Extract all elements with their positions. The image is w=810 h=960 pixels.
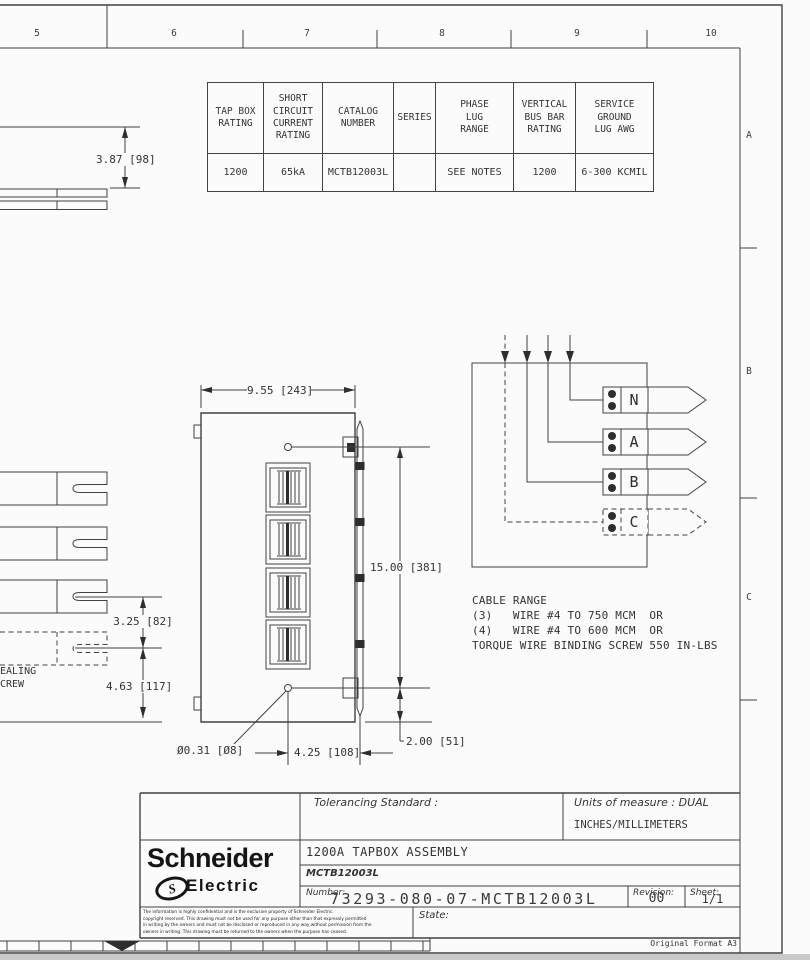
phase-label-c: C (625, 513, 643, 531)
spec-value-bus-bar-rating: 1200 (514, 153, 576, 191)
tapbox-enclosure-view (194, 413, 365, 722)
sealing-screw-note-line2: CREW (0, 679, 24, 690)
dimension-15-00: 15.00 [381] (370, 561, 432, 574)
dimension-0-31: Ø0.31 [Ø8] (177, 744, 239, 757)
legal-line-3: in writing by the owners and must not be… (143, 923, 411, 930)
spec-value-short-circuit: 65kA (264, 153, 323, 191)
cable-range-title: CABLE RANGE (472, 594, 547, 607)
cable-range-note-3: TORQUE WIRE BINDING SCREW 550 IN-LBS (472, 639, 718, 652)
dimension-3-25: 3.25 [82] (113, 615, 173, 628)
cable-range-note-2: (4) WIRE #4 TO 600 MCM OR (472, 624, 663, 637)
top-left-partial-view (0, 127, 140, 210)
spec-header-bus-bar-rating: VERTICAL BUS BAR RATING (514, 83, 576, 153)
spec-table: TAP BOX RATING SHORT CIRCUIT CURRENT RAT… (207, 82, 654, 192)
phase-label-b: B (625, 473, 643, 491)
units-value: INCHES/MILLIMETERS (574, 819, 688, 831)
format-note: Original Format A3 (597, 939, 737, 948)
legal-line-4: owners in writing. This drawing must be … (143, 930, 411, 937)
spec-value-series (394, 153, 436, 191)
phase-wiring-diagram (472, 335, 706, 567)
units-of-measure-label: Units of measure : DUAL (574, 796, 709, 809)
sheet-value: 1/1 (685, 892, 740, 906)
enclosure-dimensions (201, 385, 432, 765)
zone-col-7: 7 (297, 28, 317, 39)
drawing-number: 73293-080-07-MCTB12003L (330, 890, 598, 908)
spec-header-catalog-number: CATALOG NUMBER (323, 83, 394, 153)
zone-col-10: 10 (701, 28, 721, 39)
state-label: State: (419, 910, 449, 921)
zone-row-b: B (742, 366, 756, 377)
spec-header-tap-box-rating: TAP BOX RATING (208, 83, 264, 153)
revision-value: 00 (628, 891, 685, 906)
zone-row-c: C (742, 592, 756, 603)
dimension-9-55: 9.55 [243] (247, 384, 311, 397)
zone-col-5: 5 (27, 28, 47, 39)
spec-value-phase-lug-range: SEE NOTES (436, 153, 514, 191)
sealing-screw-note-line1: EALING (0, 666, 36, 677)
legal-line-1: The information is highly confidential a… (143, 910, 411, 917)
zone-col-8: 8 (432, 28, 452, 39)
engineering-drawing-page: 5 6 7 8 9 10 A B C TAP BOX RATING SHORT … (0, 0, 810, 960)
schneider-logo-wordmark: Schneider (147, 843, 273, 874)
spec-value-catalog-number: MCTB12003L (323, 153, 394, 191)
dimension-2-00: 2.00 [51] (406, 735, 466, 748)
dimension-4-63: 4.63 [117] (106, 680, 170, 693)
dimension-4-25: 4.25 [108] (294, 746, 356, 759)
spec-header-series: SERIES (394, 83, 436, 153)
phase-label-n: N (625, 391, 643, 409)
scan-edge-strip (0, 954, 810, 960)
spec-header-short-circuit: SHORT CIRCUIT CURRENT RATING (264, 83, 323, 153)
legal-notice: The information is highly confidential a… (143, 910, 411, 936)
spec-header-ground-lug: SERVICE GROUND LUG AWG (576, 83, 653, 153)
zone-row-a: A (742, 130, 756, 141)
drawing-title: 1200A TAPBOX ASSEMBLY (306, 845, 468, 859)
spec-header-phase-lug-range: PHASE LUG RANGE (436, 83, 514, 153)
spec-value-ground-lug: 6-300 KCMIL (576, 153, 653, 191)
zone-col-6: 6 (164, 28, 184, 39)
dimension-3-87: 3.87 [98] (96, 153, 154, 166)
cable-range-note-1: (3) WIRE #4 TO 750 MCM OR (472, 609, 663, 622)
zone-col-9: 9 (567, 28, 587, 39)
tolerancing-standard-label: Tolerancing Standard : (314, 796, 438, 809)
schneider-logo-electric: Electric (186, 876, 259, 896)
spec-value-tap-box-rating: 1200 (208, 153, 264, 191)
phase-label-a: A (625, 433, 643, 451)
drawing-subtitle: MCTB12003L (306, 868, 379, 879)
